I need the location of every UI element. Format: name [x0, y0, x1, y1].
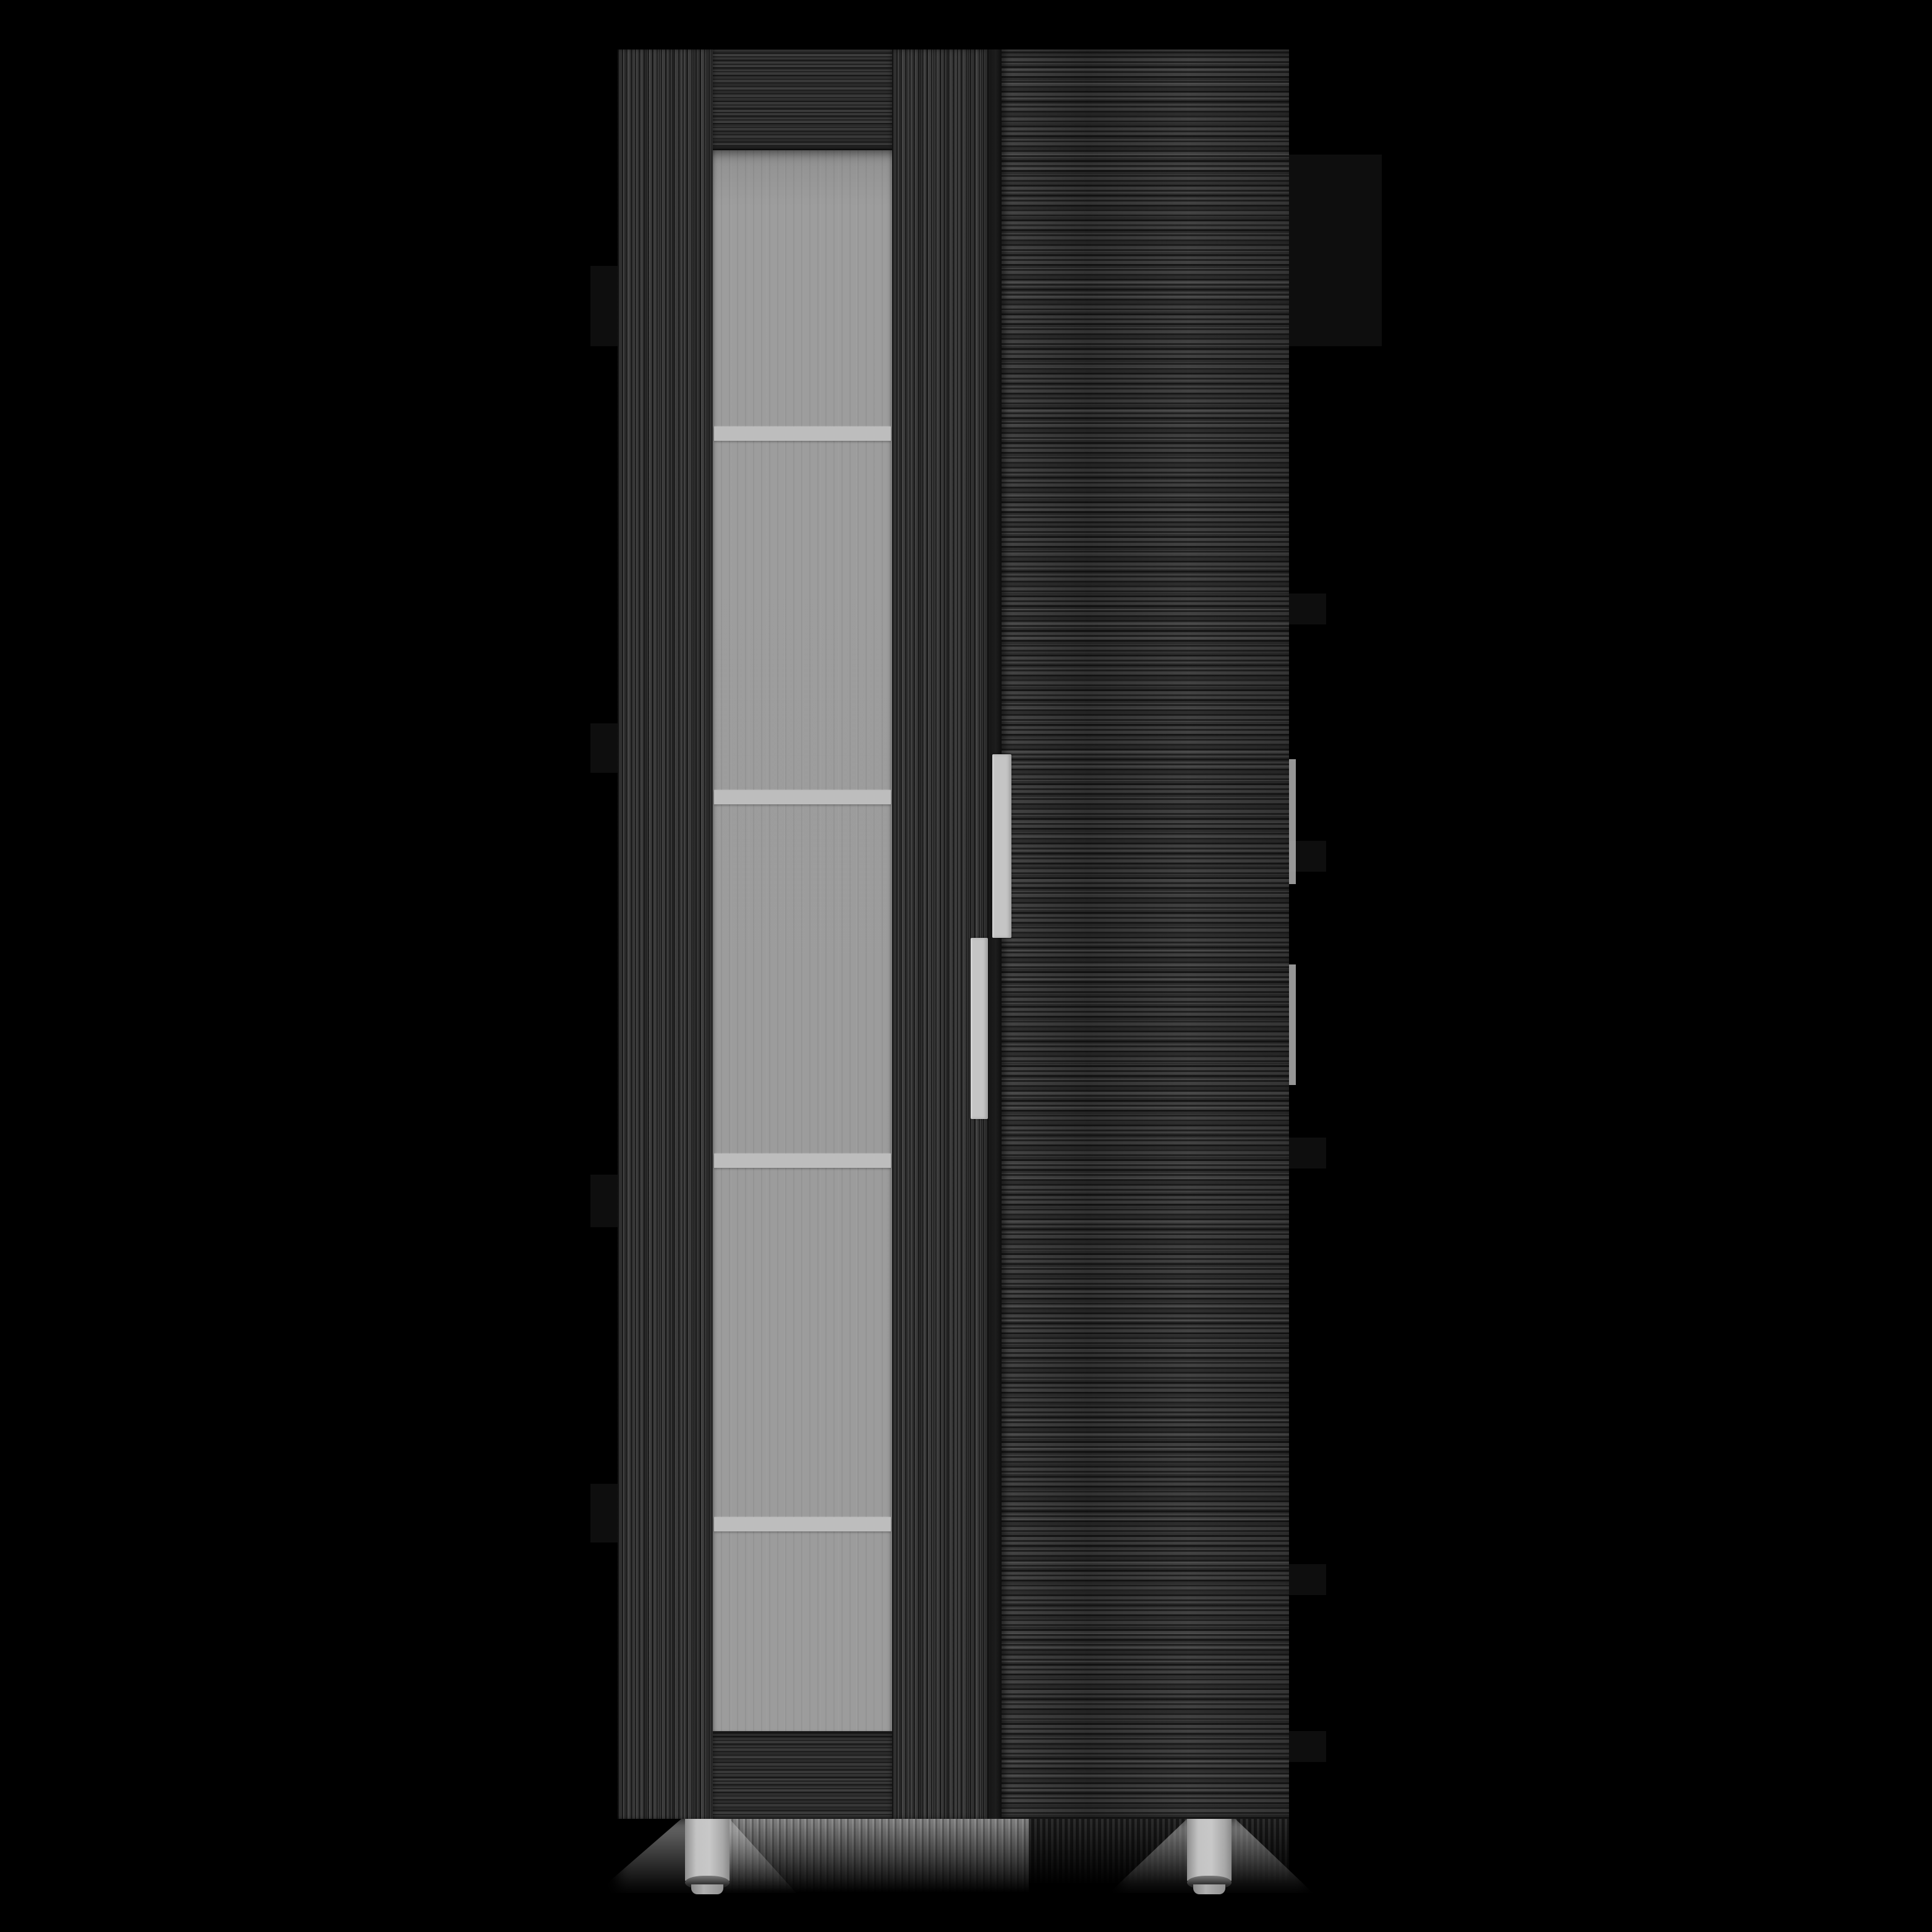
glass-door-bottom-rail — [713, 1731, 892, 1819]
cabinet — [618, 49, 1289, 1819]
right-door-handle — [992, 754, 1011, 938]
glass-door-right-stile — [892, 49, 989, 1819]
right-foot-base — [1193, 1884, 1225, 1894]
shelf-line — [714, 427, 891, 441]
product-image-canvas — [0, 0, 1932, 1932]
shelf-line — [714, 1154, 891, 1168]
glass-door-top-rail — [713, 49, 892, 150]
background-shadow-patch — [1289, 155, 1382, 346]
background-shadow-patch — [1289, 1138, 1326, 1168]
cabinet-left-frame — [618, 49, 713, 1819]
background-shadow-patch — [590, 1484, 618, 1543]
left-foot-base — [691, 1884, 723, 1894]
background-shadow-patch — [1289, 1564, 1326, 1595]
edge-highlight-sliver — [1289, 759, 1296, 884]
shelf-line — [714, 1517, 891, 1531]
right-foot — [1187, 1819, 1232, 1881]
background-shadow-patch — [1289, 594, 1326, 624]
edge-highlight-sliver — [1289, 964, 1296, 1085]
glass-door-handle — [971, 938, 988, 1119]
background-shadow-patch — [590, 266, 618, 346]
background-shadow-patch — [590, 1175, 618, 1227]
glass-door — [713, 49, 892, 1819]
frosted-glass-panel — [713, 150, 892, 1731]
left-foot — [685, 1819, 730, 1881]
background-shadow-patch — [590, 723, 618, 773]
shelf-line — [714, 790, 891, 804]
background-shadow-patch — [1289, 1731, 1326, 1762]
right-door — [1002, 49, 1289, 1819]
